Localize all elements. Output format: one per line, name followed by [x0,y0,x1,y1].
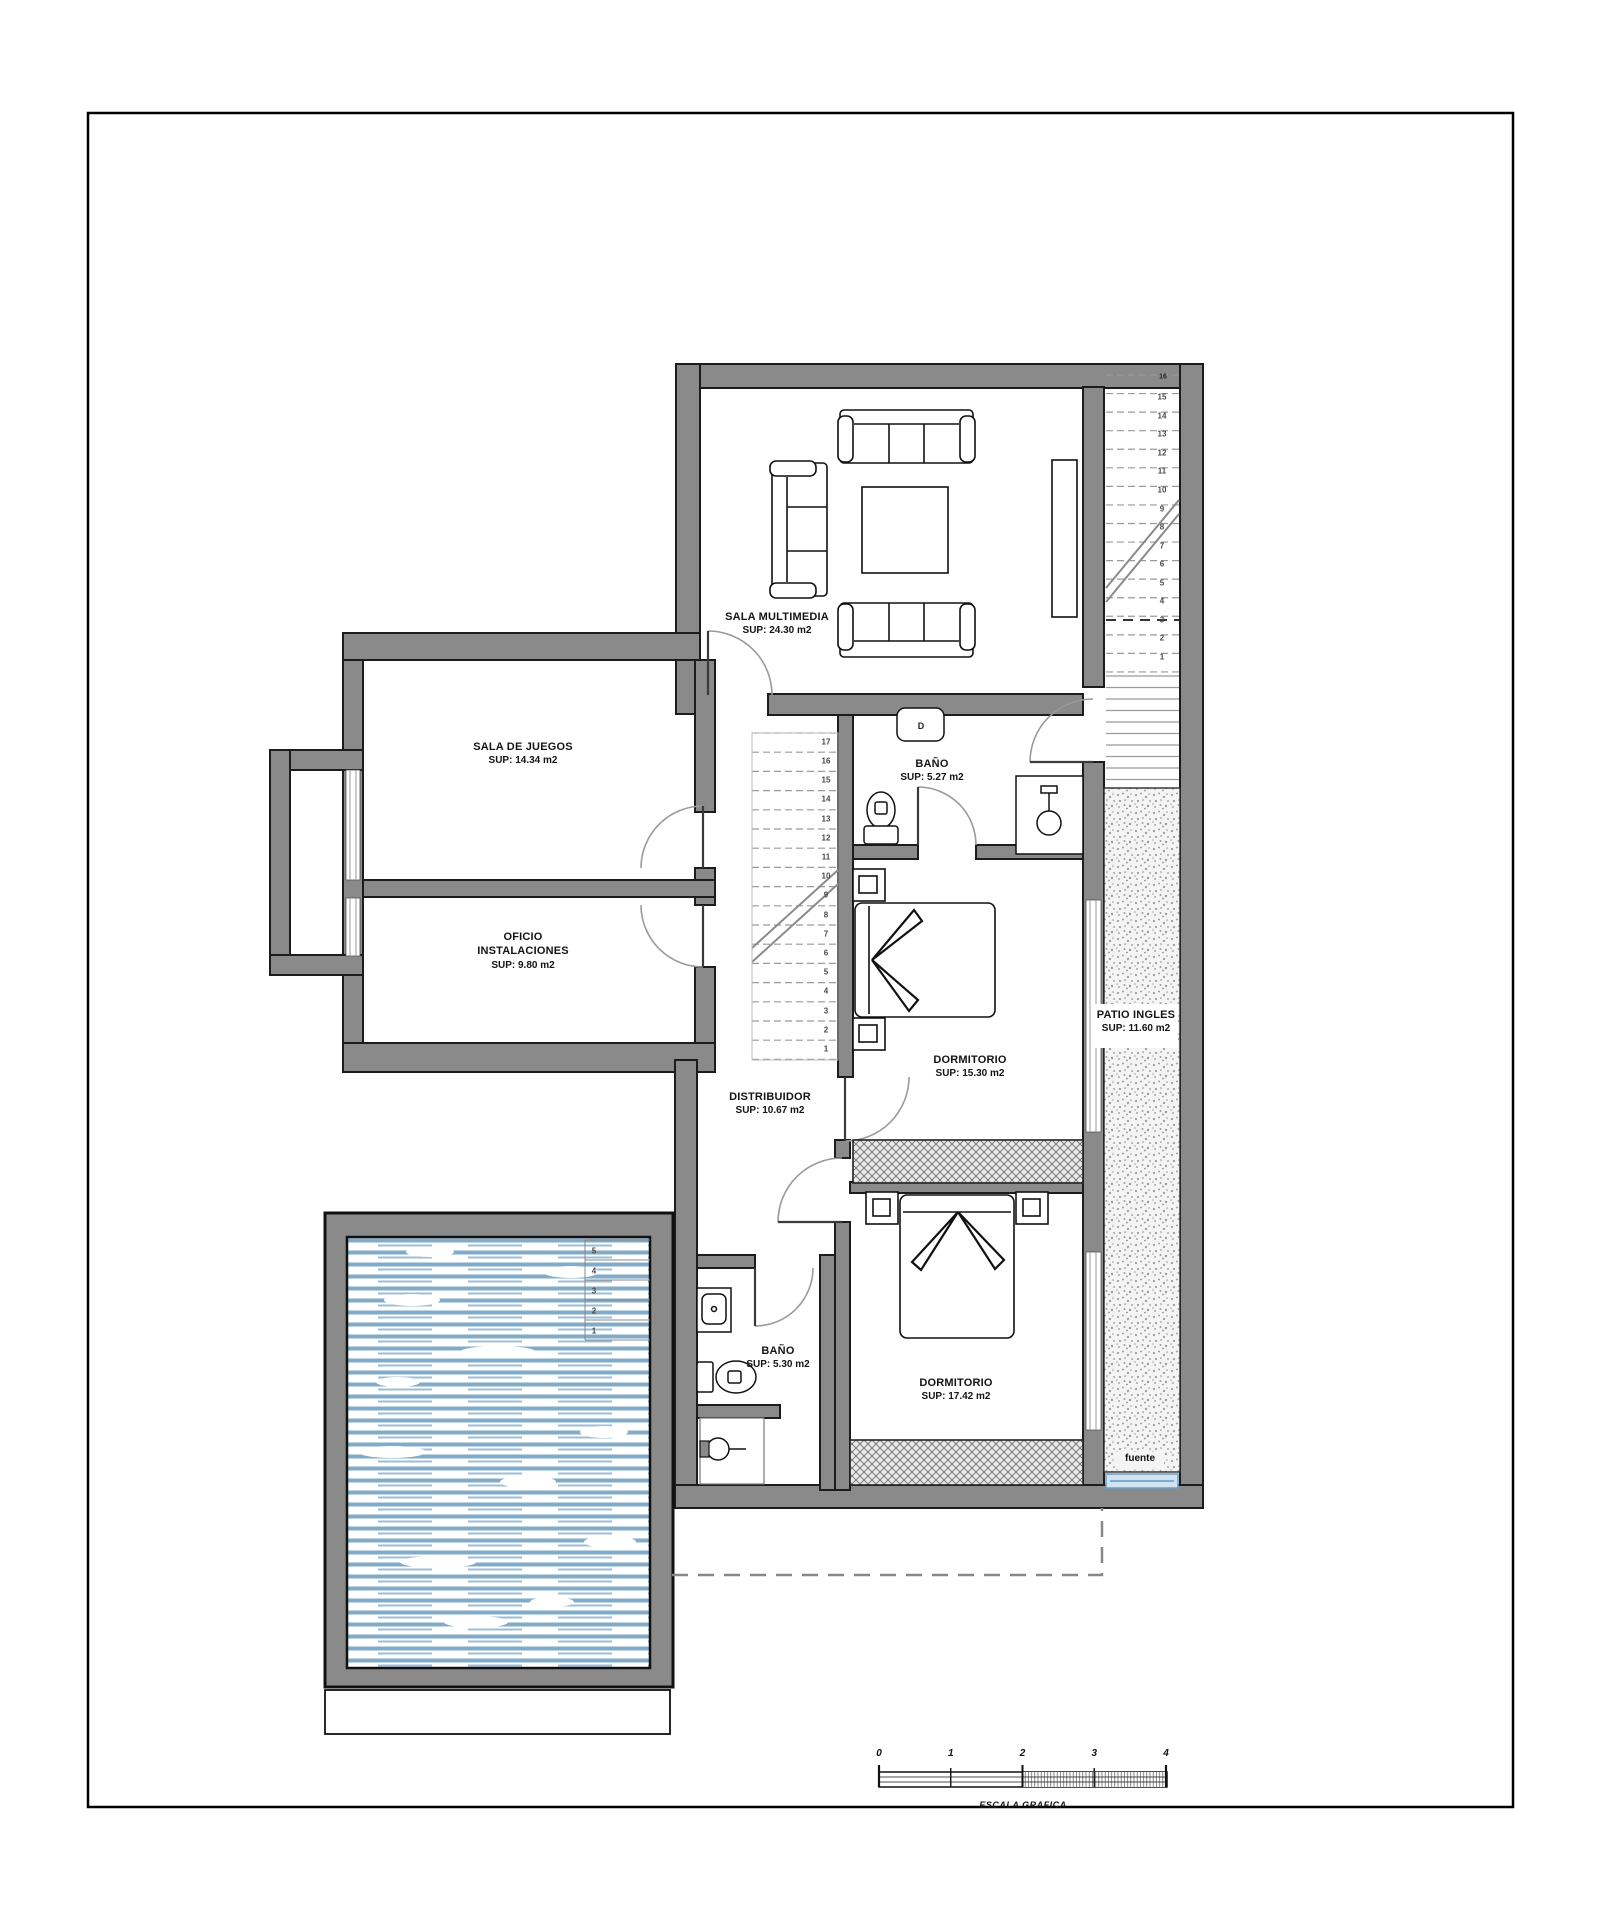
side-staircase [1106,375,1179,672]
coffee-table [862,487,948,573]
appliance-box [897,708,944,741]
pool [325,1213,673,1734]
toilet-icon [697,1361,756,1393]
scale-bar [879,1765,1167,1787]
bedroom-2-furniture [866,1192,1048,1338]
pool-apron [325,1690,670,1734]
bed-icon [855,903,995,1017]
side-staircase-lower-flight [1106,676,1179,780]
bedroom-1-furniture [853,869,995,1050]
shower-icon [700,1418,764,1484]
media-room-furniture [770,410,1077,657]
bath-upper-fixtures [864,708,1083,854]
shower-icon [1016,776,1083,854]
patio-ingles-gravel [1094,788,1180,1488]
window-oficio [346,898,360,956]
wardrobe-1 [853,1140,1083,1183]
window-juegos [346,770,360,880]
floor-plan-drawing [0,0,1601,1920]
projection-dashed-line [672,1508,1102,1575]
floor-plan-page: SALA MULTIMEDIA SUP: 24.30 m2 SALA DE JU… [0,0,1601,1920]
wardrobe-2 [850,1440,1083,1485]
window-dormitorio-2 [1086,1252,1101,1430]
tv-cabinet [1052,460,1077,617]
sink-icon [697,1288,731,1332]
